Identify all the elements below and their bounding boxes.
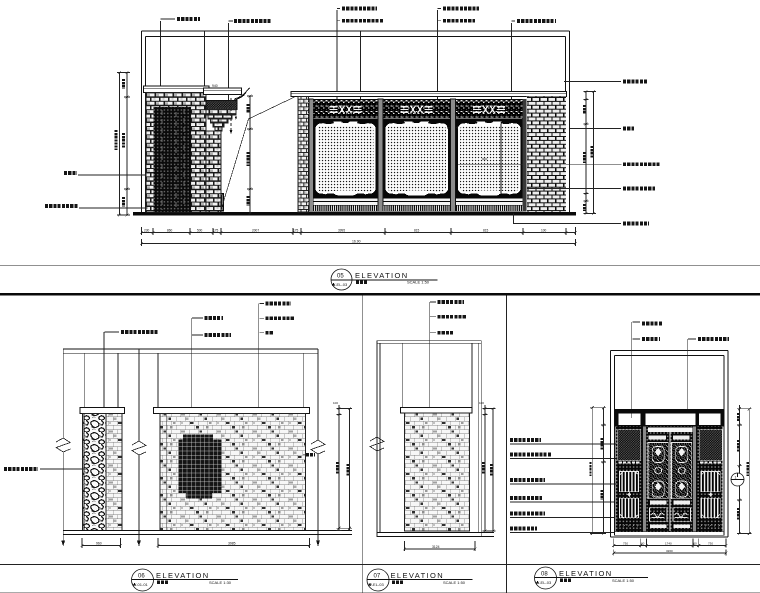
svg-text:60: 60: [641, 541, 645, 545]
svg-text:ELEVATION: ELEVATION: [559, 569, 613, 578]
svg-text:05: 05: [337, 274, 344, 280]
svg-text:3995: 3995: [338, 228, 345, 232]
svg-text:730: 730: [708, 541, 713, 545]
svg-text:100: 100: [479, 401, 484, 405]
svg-text:ELEVATION: ELEVATION: [156, 571, 210, 580]
svg-text:08: 08: [541, 572, 548, 578]
svg-text:815: 815: [483, 228, 489, 232]
svg-text:500: 500: [197, 228, 203, 232]
svg-text:230: 230: [144, 228, 150, 232]
svg-text:60: 60: [693, 541, 697, 545]
svg-text:3260: 3260: [666, 549, 673, 553]
svg-text:815: 815: [414, 228, 420, 232]
svg-text:ELEVATION: ELEVATION: [391, 571, 445, 580]
svg-text:940: 940: [212, 84, 218, 88]
svg-text:07: 07: [374, 574, 381, 580]
svg-text:730: 730: [623, 541, 628, 545]
svg-text:860: 860: [167, 228, 173, 232]
svg-text:16.90: 16.90: [352, 239, 361, 243]
svg-text:1: 1: [735, 476, 737, 480]
svg-text:SCALE 1:50: SCALE 1:50: [443, 580, 466, 585]
svg-text:100: 100: [333, 401, 338, 405]
svg-text:900: 900: [482, 157, 487, 161]
svg-text:175: 175: [293, 228, 299, 232]
svg-text:06: 06: [138, 574, 145, 580]
svg-text:1740: 1740: [665, 541, 672, 545]
svg-text:100: 100: [541, 228, 547, 232]
svg-text:SCALE 1:50: SCALE 1:50: [612, 578, 635, 583]
svg-text:175: 175: [213, 228, 219, 232]
svg-text:ELEVATION: ELEVATION: [355, 271, 409, 280]
svg-text:2007: 2007: [252, 228, 259, 232]
svg-text:3985: 3985: [228, 541, 236, 545]
svg-text:3124: 3124: [432, 545, 440, 549]
svg-text:960: 960: [96, 541, 102, 545]
svg-text:SCALE 1:50: SCALE 1:50: [407, 280, 430, 285]
svg-text:SCALE 1:30: SCALE 1:30: [209, 580, 232, 585]
